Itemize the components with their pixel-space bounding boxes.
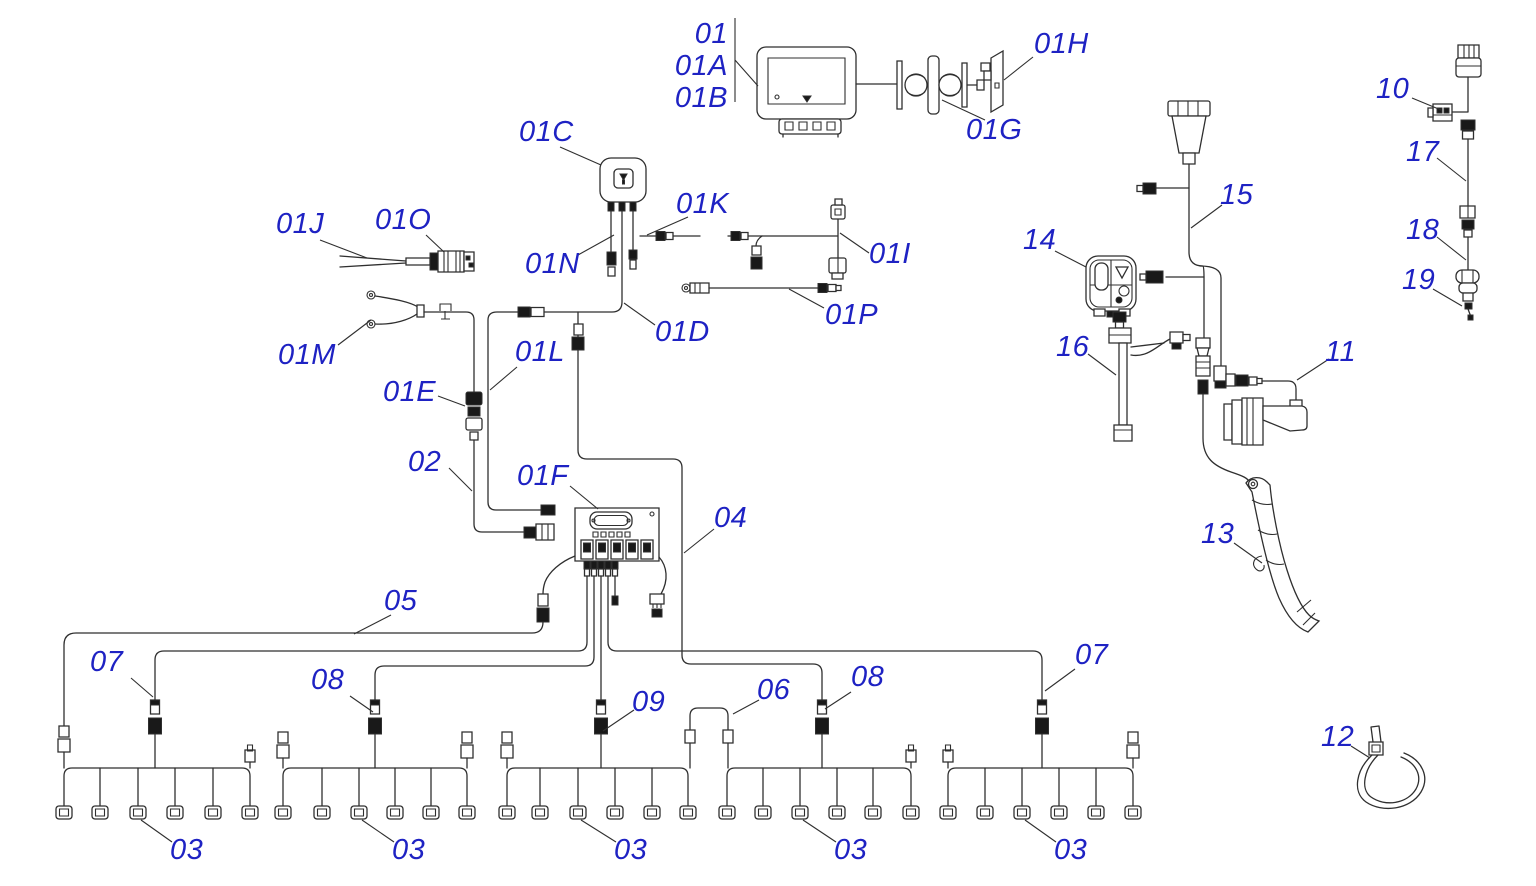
- callout-01g[interactable]: 01G: [966, 116, 1022, 145]
- connector-assembly-11: [1214, 366, 1307, 445]
- callout-08-left[interactable]: 08: [311, 666, 344, 695]
- callout-01a[interactable]: 01A: [664, 52, 728, 81]
- boom-section-5: [940, 700, 1141, 819]
- jumper-cable-06: [685, 708, 733, 768]
- boom-section-1: [56, 700, 258, 819]
- callout-04[interactable]: 04: [714, 504, 747, 533]
- callout-03-2[interactable]: 03: [392, 836, 425, 865]
- callout-03-1[interactable]: 03: [170, 836, 203, 865]
- ram-mount-arm: [897, 56, 984, 114]
- display-monitor: [757, 47, 897, 137]
- cable-tie-12: [1357, 726, 1424, 808]
- callout-01e[interactable]: 01E: [383, 378, 436, 407]
- callout-01o[interactable]: 01O: [375, 206, 431, 235]
- antenna-cable: [340, 251, 474, 272]
- callout-16[interactable]: 16: [1056, 333, 1089, 362]
- callout-01n[interactable]: 01N: [525, 250, 580, 279]
- callout-07-left[interactable]: 07: [90, 648, 123, 677]
- callout-01d[interactable]: 01D: [655, 318, 710, 347]
- callout-01j[interactable]: 01J: [276, 210, 324, 239]
- callout-08-right[interactable]: 08: [851, 663, 884, 692]
- callout-03-3[interactable]: 03: [614, 836, 647, 865]
- callout-01c[interactable]: 01C: [519, 118, 574, 147]
- boot-13: [1246, 478, 1319, 632]
- sensor-jumper-cable: [682, 283, 841, 293]
- extension-cable-right: [1428, 45, 1481, 320]
- callout-17[interactable]: 17: [1406, 138, 1439, 167]
- callout-19[interactable]: 19: [1402, 266, 1435, 295]
- flow-sensor-16: [1109, 312, 1190, 441]
- control-module: [575, 508, 659, 561]
- callout-01f[interactable]: 01F: [517, 462, 568, 491]
- callout-11[interactable]: 11: [1325, 338, 1356, 367]
- boom-section-4: [719, 700, 919, 819]
- display-harness: [488, 211, 822, 700]
- callout-03-5[interactable]: 03: [1054, 836, 1087, 865]
- callout-10[interactable]: 10: [1376, 75, 1409, 104]
- callout-02[interactable]: 02: [408, 448, 441, 477]
- callout-01l[interactable]: 01L: [515, 338, 565, 367]
- harness-05-run: [64, 622, 543, 726]
- callout-05[interactable]: 05: [384, 587, 417, 616]
- boom-section-2: [275, 700, 475, 819]
- callout-01[interactable]: 01: [664, 20, 728, 49]
- y-harness: [751, 199, 846, 279]
- can-extension-cable: [640, 232, 762, 241]
- callout-01h[interactable]: 01H: [1034, 30, 1089, 59]
- keypad-module-14: [1086, 256, 1136, 317]
- callout-13[interactable]: 13: [1201, 520, 1234, 549]
- callout-07-right[interactable]: 07: [1075, 641, 1108, 670]
- callout-01k[interactable]: 01K: [676, 190, 729, 219]
- callout-01b[interactable]: 01B: [664, 84, 728, 113]
- harness-07-runs: [155, 576, 1042, 700]
- callout-15[interactable]: 15: [1220, 181, 1253, 210]
- callout-09[interactable]: 09: [632, 688, 665, 717]
- battery-pigtail: [367, 291, 424, 328]
- callout-06[interactable]: 06: [757, 676, 790, 705]
- callout-03-4[interactable]: 03: [834, 836, 867, 865]
- callout-14[interactable]: 14: [1023, 226, 1056, 255]
- gps-receiver: [600, 158, 646, 276]
- callout-18[interactable]: 18: [1406, 216, 1439, 245]
- parts-diagram: 01 01A 01B 01H 01G 01C 01K 01N 01J 01O 0…: [0, 0, 1536, 886]
- callout-01i[interactable]: 01I: [869, 240, 911, 269]
- leader-lines: [131, 18, 1466, 842]
- callout-12[interactable]: 12: [1321, 723, 1354, 752]
- callout-01m[interactable]: 01M: [278, 341, 336, 370]
- diagram-line-art: [0, 0, 1536, 886]
- callout-01p[interactable]: 01P: [825, 301, 878, 330]
- boom-section-3: [499, 700, 696, 819]
